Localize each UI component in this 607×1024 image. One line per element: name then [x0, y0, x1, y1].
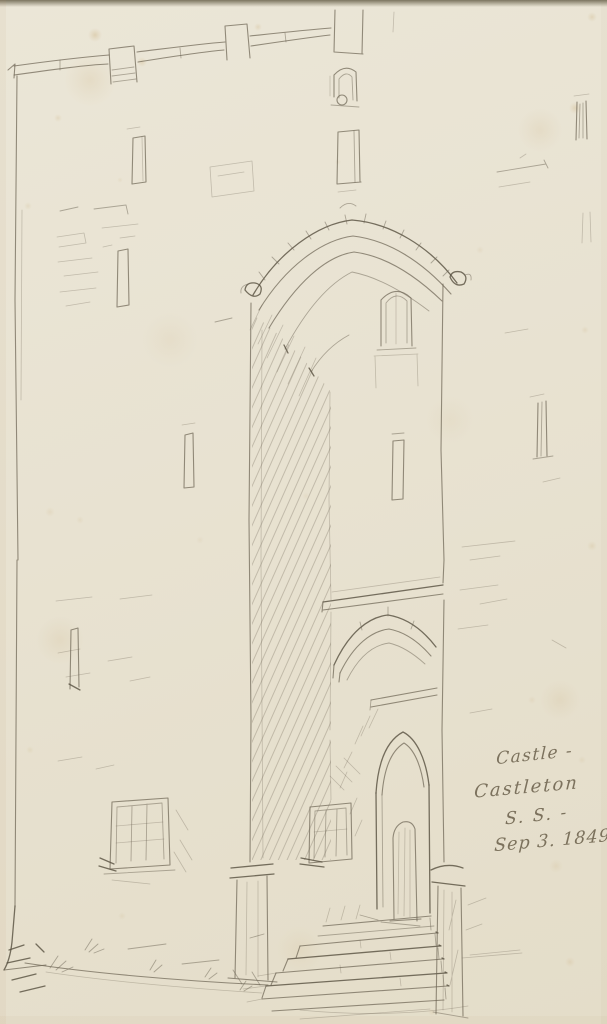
gate-tower-top	[210, 10, 394, 197]
right-pier	[431, 865, 520, 1018]
doorway	[340, 709, 430, 926]
wall-slit-window-b	[103, 236, 135, 307]
facade-slit-window	[392, 433, 404, 500]
facade-arched-window	[374, 291, 418, 388]
artwork-scan: Castle - Castleton S. S. - Sep 3. 1849	[0, 0, 607, 1024]
wall-paned-window	[99, 798, 192, 884]
right-wall	[458, 94, 591, 713]
wall-slit-window-c	[182, 423, 195, 488]
steps	[243, 905, 449, 1019]
inner-arch	[333, 607, 436, 682]
right-slit-window-c	[530, 394, 553, 459]
stone-marks-upper	[60, 205, 128, 214]
impost-band	[370, 688, 437, 710]
right-slit-window-b	[582, 212, 591, 243]
arch-corbel-left	[241, 283, 261, 296]
wall-slit-window-a	[127, 127, 146, 184]
right-slit-window-a	[574, 94, 589, 140]
tower-niche-window	[330, 68, 359, 107]
gate-passage	[249, 303, 331, 862]
string-course	[322, 577, 443, 612]
left-pier	[228, 864, 277, 985]
faint-stone-outline	[210, 161, 254, 197]
left-wall	[4, 76, 195, 992]
tower-merlon	[334, 10, 394, 54]
door-leaf	[390, 822, 421, 921]
battlement-parapet	[8, 24, 331, 84]
sketch-svg	[0, 0, 607, 1024]
